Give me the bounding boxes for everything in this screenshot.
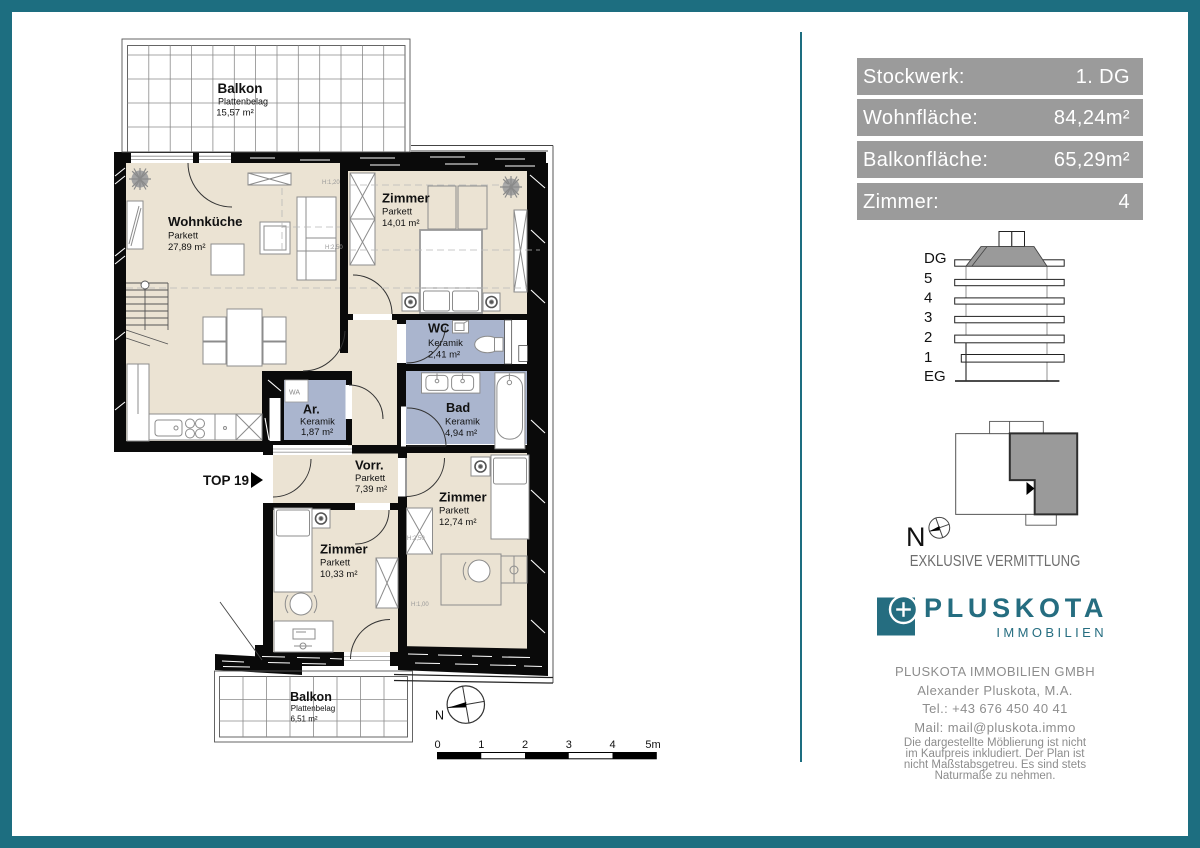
svg-text:4: 4 [609, 739, 615, 751]
svg-text:PLUSKOTA: PLUSKOTA [924, 593, 1108, 623]
svg-text:Parkett: Parkett [382, 207, 412, 218]
svg-text:6,51 m²: 6,51 m² [290, 715, 317, 724]
svg-text:Parkett: Parkett [320, 558, 350, 569]
svg-text:14,01 m²: 14,01 m² [382, 218, 420, 229]
svg-text:IMMOBILIEN: IMMOBILIEN [996, 625, 1107, 640]
svg-text:27,89 m²: 27,89 m² [168, 242, 206, 253]
svg-text:Plattenbelag: Plattenbelag [291, 704, 335, 713]
svg-text:Keramik: Keramik [428, 338, 463, 349]
svg-text:1,87 m²: 1,87 m² [301, 427, 333, 438]
svg-text:0: 0 [434, 739, 440, 751]
svg-text:3: 3 [924, 309, 932, 326]
svg-text:4: 4 [924, 290, 932, 307]
svg-text:Keramik: Keramik [445, 417, 480, 428]
svg-text:WA: WA [289, 390, 300, 397]
svg-text:4,94 m²: 4,94 m² [445, 428, 477, 439]
svg-text:Parkett: Parkett [168, 231, 198, 242]
svg-text:Plattenbelag: Plattenbelag [218, 97, 268, 107]
svg-text:WC: WC [428, 321, 449, 336]
svg-text:Balkon: Balkon [290, 690, 332, 704]
svg-text:2: 2 [924, 329, 932, 346]
svg-text:15,57 m²: 15,57 m² [216, 108, 254, 119]
svg-text:N: N [906, 522, 926, 550]
svg-text:Balkon: Balkon [217, 81, 262, 96]
svg-text:12,74 m²: 12,74 m² [439, 517, 477, 528]
svg-text:5: 5 [924, 270, 932, 287]
svg-text:Zimmer: Zimmer [382, 191, 430, 206]
svg-text:1: 1 [478, 739, 484, 751]
svg-text:Parkett: Parkett [439, 506, 469, 517]
svg-text:3: 3 [566, 739, 572, 751]
svg-text:Ar.: Ar. [303, 403, 320, 417]
svg-text:Keramik: Keramik [300, 417, 335, 428]
svg-text:H:1,20: H:1,20 [322, 180, 340, 186]
svg-text:Zimmer: Zimmer [439, 490, 487, 505]
svg-text:10,33 m²: 10,33 m² [320, 569, 358, 580]
svg-text:N: N [435, 709, 444, 723]
svg-text:2: 2 [522, 739, 528, 751]
svg-text:Zimmer: Zimmer [320, 542, 368, 557]
svg-text:5m: 5m [645, 739, 660, 751]
svg-text:DG: DG [924, 250, 947, 267]
svg-text:2,41 m²: 2,41 m² [428, 350, 460, 361]
svg-text:H:2,50: H:2,50 [407, 536, 425, 542]
svg-text:Wohnküche: Wohnküche [168, 214, 243, 229]
svg-text:H:2,50: H:2,50 [325, 245, 343, 251]
svg-text:Bad: Bad [446, 400, 470, 415]
svg-text:TOP 19: TOP 19 [203, 473, 249, 488]
svg-text:Parkett: Parkett [355, 473, 385, 484]
svg-text:EG: EG [924, 368, 946, 385]
svg-text:1: 1 [924, 349, 932, 366]
svg-text:Vorr.: Vorr. [355, 458, 384, 473]
svg-text:H:1,00: H:1,00 [411, 602, 429, 608]
svg-text:7,39 m²: 7,39 m² [355, 484, 387, 495]
